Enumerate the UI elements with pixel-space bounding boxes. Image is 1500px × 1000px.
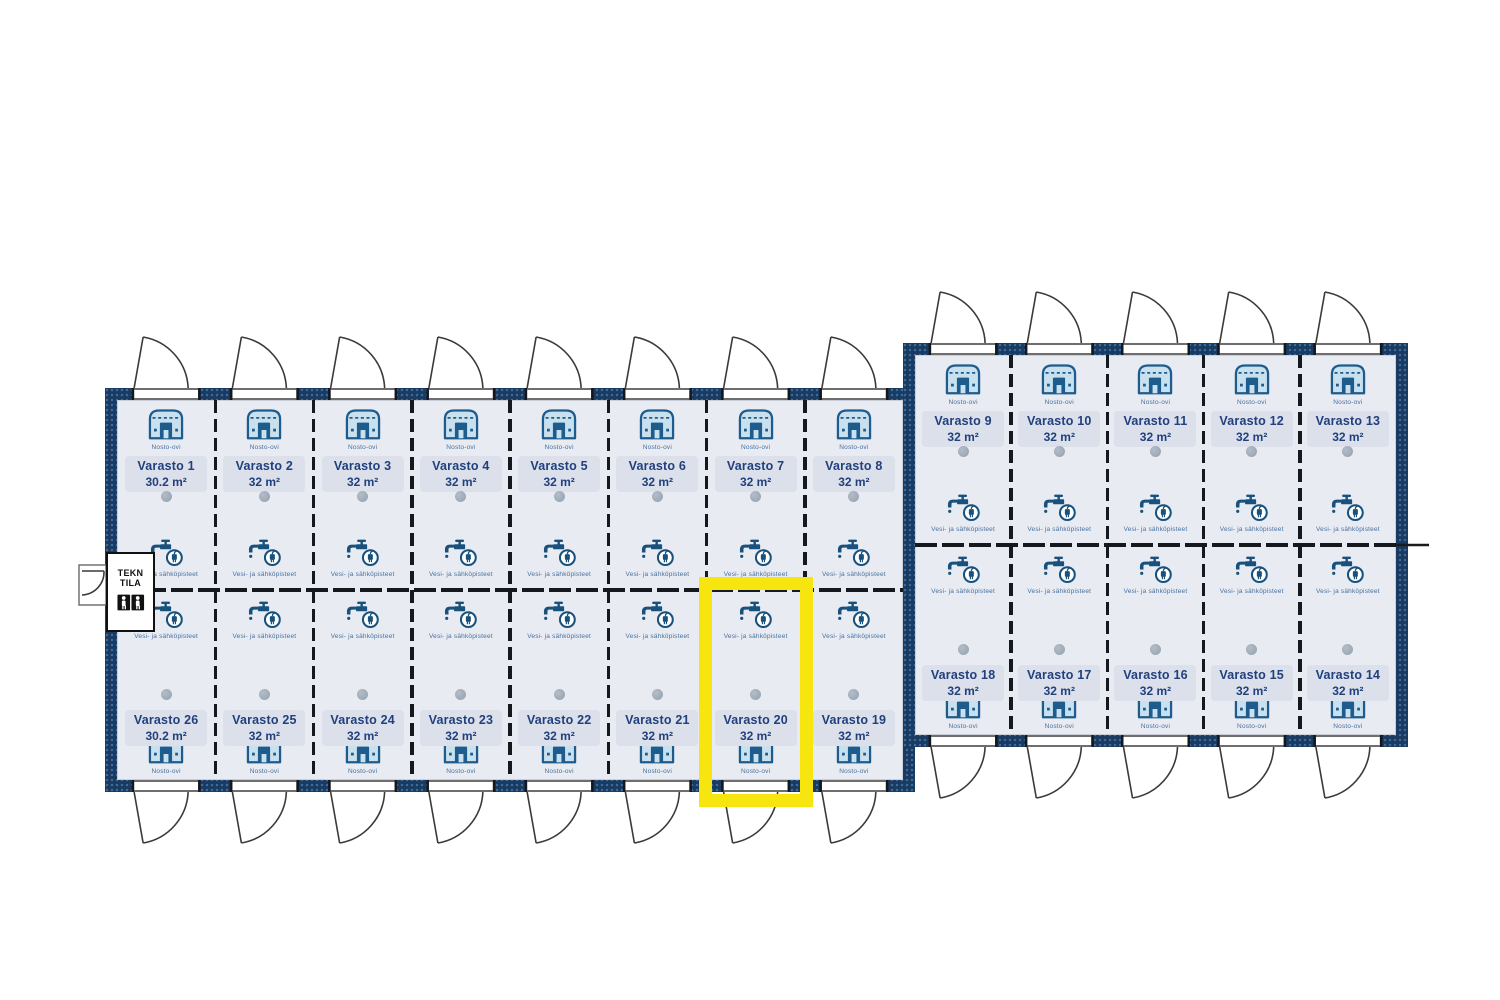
garage-door-icon xyxy=(1135,362,1175,399)
nosto-ovi-label: Nosto-ovi xyxy=(117,769,215,776)
unit-name-plate: Varasto 13 32 m² xyxy=(1307,411,1389,447)
unit-name: Varasto 5 xyxy=(525,460,593,473)
vent-block xyxy=(1011,445,1107,461)
unit-name: Varasto 7 xyxy=(722,460,790,473)
vent-block xyxy=(608,490,706,506)
garage-door-icon xyxy=(1232,362,1272,399)
unit-name-plate: Varasto 26 30.2 m² xyxy=(125,710,207,746)
utilities-block: Vesi- ja sähköpisteet xyxy=(1107,556,1203,596)
unit-name: Varasto 8 xyxy=(820,460,888,473)
water-electric-icon xyxy=(246,601,283,633)
vent-block xyxy=(1300,643,1396,659)
vent-icon xyxy=(455,689,466,700)
nosto-ovi-label: Nosto-ovi xyxy=(1300,724,1396,731)
utilities-label: Vesi- ja sähköpisteet xyxy=(510,634,608,641)
unit-plate-block: Varasto 10 32 m² xyxy=(1011,411,1107,447)
unit-name: Varasto 13 xyxy=(1314,415,1382,428)
garage-door-icon xyxy=(441,407,481,444)
vent-icon xyxy=(357,491,368,502)
unit-name: Varasto 25 xyxy=(230,714,298,727)
unit-area: 32 m² xyxy=(427,730,495,742)
unit-plate-block: Varasto 2 32 m² xyxy=(215,456,313,492)
utilities-label: Vesi- ja sähköpisteet xyxy=(1107,527,1203,534)
nosto-ovi-label: Nosto-ovi xyxy=(1107,724,1203,731)
unit-area: 32 m² xyxy=(1121,431,1189,443)
utilities-block: Vesi- ja sähköpisteet xyxy=(510,539,608,579)
vent-block xyxy=(215,490,313,506)
storage-unit[interactable]: Nosto-ovi Varasto 17 32 m² xyxy=(1011,547,1107,735)
unit-divider-wall xyxy=(410,400,414,780)
vent-block xyxy=(314,490,412,506)
unit-area: 32 m² xyxy=(1314,685,1382,697)
nosto-ovi-label: Nosto-ovi xyxy=(215,769,313,776)
unit-name-plate: Varasto 7 32 m² xyxy=(715,456,797,492)
unit-name-plate: Varasto 11 32 m² xyxy=(1114,411,1196,447)
unit-plate-block: Varasto 22 32 m² xyxy=(510,710,608,746)
unit-area: 32 m² xyxy=(1314,431,1382,443)
nosto-ovi-label: Nosto-ovi xyxy=(1204,724,1300,731)
unit-area: 30.2 m² xyxy=(132,730,200,742)
technical-room: TEKN TILA xyxy=(106,552,155,632)
unit-plate-block: Varasto 6 32 m² xyxy=(608,456,706,492)
nosto-ovi-label: Nosto-ovi xyxy=(1011,400,1107,407)
water-electric-icon xyxy=(737,539,774,571)
garage-door-block: Nosto-ovi xyxy=(915,362,1011,407)
nosto-ovi-label: Nosto-ovi xyxy=(608,445,706,452)
unit-name: Varasto 2 xyxy=(230,460,298,473)
technical-room-label-line2: TILA xyxy=(108,578,153,588)
garage-door-block: Nosto-ovi xyxy=(314,407,412,452)
garage-door-icon xyxy=(244,407,284,444)
nosto-ovi-label: Nosto-ovi xyxy=(1107,400,1203,407)
unit-name: Varasto 4 xyxy=(427,460,495,473)
vent-block xyxy=(805,490,903,506)
utilities-label: Vesi- ja sähköpisteet xyxy=(1204,527,1300,534)
unit-plate-block: Varasto 14 32 m² xyxy=(1300,665,1396,701)
water-electric-icon xyxy=(639,601,676,633)
utilities-block: Vesi- ja sähköpisteet xyxy=(1011,494,1107,534)
unit-name: Varasto 24 xyxy=(329,714,397,727)
vent-icon xyxy=(161,689,172,700)
unit-plate-block: Varasto 11 32 m² xyxy=(1107,411,1203,447)
utilities-label: Vesi- ja sähköpisteet xyxy=(314,634,412,641)
nosto-ovi-label: Nosto-ovi xyxy=(412,769,510,776)
highlight-box xyxy=(699,577,813,807)
storage-unit[interactable]: Nosto-ovi Varasto 14 32 m² xyxy=(1300,547,1396,735)
utilities-label: Vesi- ja sähköpisteet xyxy=(215,634,313,641)
technical-room-label: TEKN TILA xyxy=(108,568,153,589)
technical-room-label-line1: TEKN xyxy=(108,568,153,578)
garage-door-block: Nosto-ovi xyxy=(1300,362,1396,407)
utilities-block: Vesi- ja sähköpisteet xyxy=(805,539,903,579)
unit-area: 32 m² xyxy=(929,685,997,697)
utilities-block: Vesi- ja sähköpisteet xyxy=(915,556,1011,596)
utilities-block: Vesi- ja sähköpisteet xyxy=(412,539,510,579)
unit-name-plate: Varasto 21 32 m² xyxy=(616,710,698,746)
unit-divider-wall xyxy=(1106,355,1110,735)
utilities-block: Vesi- ja sähköpisteet xyxy=(1204,494,1300,534)
unit-name-plate: Varasto 12 32 m² xyxy=(1211,411,1293,447)
vent-icon xyxy=(259,689,270,700)
vent-block xyxy=(117,688,215,704)
water-electric-icon xyxy=(639,539,676,571)
unit-name: Varasto 10 xyxy=(1025,415,1093,428)
unit-name: Varasto 16 xyxy=(1121,669,1189,682)
unit-area: 32 m² xyxy=(329,730,397,742)
unit-plate-block: Varasto 21 32 m² xyxy=(608,710,706,746)
unit-name: Varasto 9 xyxy=(929,415,997,428)
garage-door-block: Nosto-ovi xyxy=(215,407,313,452)
nosto-ovi-label: Nosto-ovi xyxy=(915,724,1011,731)
storage-unit[interactable]: Nosto-ovi Varasto 9 32 m² xyxy=(915,355,1011,543)
unit-name: Varasto 17 xyxy=(1025,669,1093,682)
unit-plate-block: Varasto 19 32 m² xyxy=(805,710,903,746)
nosto-ovi-label: Nosto-ovi xyxy=(314,445,412,452)
utilities-label: Vesi- ja sähköpisteet xyxy=(412,634,510,641)
unit-area: 32 m² xyxy=(929,431,997,443)
garage-door-block: Nosto-ovi xyxy=(1107,362,1203,407)
storage-unit[interactable]: Nosto-ovi Varasto 10 32 m² xyxy=(1011,355,1107,543)
vent-block xyxy=(1107,643,1203,659)
unit-name-plate: Varasto 16 32 m² xyxy=(1114,665,1196,701)
vent-icon xyxy=(161,491,172,502)
garage-door-icon xyxy=(1328,362,1368,399)
unit-plate-block: Varasto 17 32 m² xyxy=(1011,665,1107,701)
garage-door-icon xyxy=(834,407,874,444)
unit-area: 32 m² xyxy=(1218,685,1286,697)
storage-unit[interactable]: Nosto-ovi Varasto 25 32 m² xyxy=(215,592,313,780)
unit-plate-block: Varasto 24 32 m² xyxy=(314,710,412,746)
utilities-block: Vesi- ja sähköpisteet xyxy=(1300,556,1396,596)
vent-block xyxy=(412,688,510,704)
unit-plate-block: Varasto 9 32 m² xyxy=(915,411,1011,447)
storage-unit[interactable]: Nosto-ovi Varasto 18 32 m² xyxy=(915,547,1011,735)
vent-block xyxy=(608,688,706,704)
unit-area: 32 m² xyxy=(1121,685,1189,697)
unit-plate-block: Varasto 23 32 m² xyxy=(412,710,510,746)
unit-name-plate: Varasto 2 32 m² xyxy=(223,456,305,492)
utilities-block: Vesi- ja sähköpisteet xyxy=(1107,494,1203,534)
unit-divider-wall xyxy=(312,400,316,780)
vent-block xyxy=(707,490,805,506)
nosto-ovi-label: Nosto-ovi xyxy=(1011,724,1107,731)
unit-divider-wall xyxy=(1202,355,1206,735)
water-electric-icon xyxy=(344,539,381,571)
unit-name-plate: Varasto 8 32 m² xyxy=(813,456,895,492)
utilities-label: Vesi- ja sähköpisteet xyxy=(608,572,706,579)
utilities-label: Vesi- ja sähköpisteet xyxy=(1300,589,1396,596)
floor-plan: TEKN TILA xyxy=(0,0,1500,1000)
unit-area: 32 m² xyxy=(525,476,593,488)
storage-unit[interactable]: Nosto-ovi Varasto 7 32 m² xyxy=(707,400,805,588)
vent-icon xyxy=(1150,644,1161,655)
unit-divider-wall xyxy=(214,400,218,780)
garage-door-block: Nosto-ovi xyxy=(707,407,805,452)
unit-plate-block: Varasto 4 32 m² xyxy=(412,456,510,492)
storage-unit[interactable]: Nosto-ovi Varasto 11 32 m² xyxy=(1107,355,1203,543)
unit-area: 32 m² xyxy=(1025,685,1093,697)
nosto-ovi-label: Nosto-ovi xyxy=(215,445,313,452)
unit-name: Varasto 18 xyxy=(929,669,997,682)
unit-plate-block: Varasto 8 32 m² xyxy=(805,456,903,492)
vent-block xyxy=(412,490,510,506)
nosto-ovi-label: Nosto-ovi xyxy=(314,769,412,776)
storage-unit[interactable]: Nosto-ovi Varasto 15 32 m² xyxy=(1204,547,1300,735)
garage-door-icon xyxy=(736,407,776,444)
utilities-label: Vesi- ja sähköpisteet xyxy=(805,634,903,641)
utilities-label: Vesi- ja sähköpisteet xyxy=(1011,527,1107,534)
vent-icon xyxy=(1150,446,1161,457)
utilities-label: Vesi- ja sähköpisteet xyxy=(1107,589,1203,596)
nosto-ovi-label: Nosto-ovi xyxy=(117,445,215,452)
unit-plate-block: Varasto 7 32 m² xyxy=(707,456,805,492)
unit-area: 30.2 m² xyxy=(132,476,200,488)
vent-icon xyxy=(848,689,859,700)
wc-icon xyxy=(117,594,145,611)
utilities-block: Vesi- ja sähköpisteet xyxy=(510,601,608,641)
water-electric-icon xyxy=(1137,556,1174,588)
storage-unit[interactable]: Nosto-ovi Varasto 16 32 m² xyxy=(1107,547,1203,735)
storage-unit[interactable]: Nosto-ovi Varasto 23 32 m² xyxy=(412,592,510,780)
unit-divider-wall xyxy=(1298,355,1302,735)
unit-name: Varasto 12 xyxy=(1218,415,1286,428)
unit-name-plate: Varasto 24 32 m² xyxy=(322,710,404,746)
utilities-block: Vesi- ja sähköpisteet xyxy=(1204,556,1300,596)
storage-unit[interactable]: Nosto-ovi Varasto 12 32 m² xyxy=(1204,355,1300,543)
unit-name: Varasto 22 xyxy=(525,714,593,727)
nosto-ovi-label: Nosto-ovi xyxy=(412,445,510,452)
garage-door-block: Nosto-ovi xyxy=(1011,362,1107,407)
unit-name-plate: Varasto 10 32 m² xyxy=(1018,411,1100,447)
unit-name: Varasto 14 xyxy=(1314,669,1382,682)
nosto-ovi-label: Nosto-ovi xyxy=(1204,400,1300,407)
storage-unit[interactable]: Nosto-ovi Varasto 6 32 m² xyxy=(608,400,706,588)
water-electric-icon xyxy=(1041,556,1078,588)
nosto-ovi-label: Nosto-ovi xyxy=(707,445,805,452)
unit-name: Varasto 6 xyxy=(623,460,691,473)
nosto-ovi-label: Nosto-ovi xyxy=(510,769,608,776)
vent-block xyxy=(1204,643,1300,659)
unit-divider-wall xyxy=(1009,355,1013,735)
vent-block xyxy=(117,490,215,506)
unit-plate-block: Varasto 25 32 m² xyxy=(215,710,313,746)
utilities-block: Vesi- ja sähköpisteet xyxy=(608,539,706,579)
unit-name-plate: Varasto 14 32 m² xyxy=(1307,665,1389,701)
nosto-ovi-label: Nosto-ovi xyxy=(805,445,903,452)
water-electric-icon xyxy=(1329,494,1366,526)
storage-unit[interactable]: Nosto-ovi Varasto 13 32 m² xyxy=(1300,355,1396,543)
unit-name-plate: Varasto 5 32 m² xyxy=(518,456,600,492)
water-electric-icon xyxy=(1137,494,1174,526)
storage-unit[interactable]: Nosto-ovi Varasto 19 32 m² xyxy=(805,592,903,780)
unit-plate-block: Varasto 15 32 m² xyxy=(1204,665,1300,701)
unit-divider-wall xyxy=(508,400,512,780)
vent-icon xyxy=(1342,446,1353,457)
unit-area: 32 m² xyxy=(820,476,888,488)
garage-door-block: Nosto-ovi xyxy=(117,407,215,452)
water-electric-icon xyxy=(246,539,283,571)
water-electric-icon xyxy=(1041,494,1078,526)
vent-icon xyxy=(958,644,969,655)
unit-name-plate: Varasto 3 32 m² xyxy=(322,456,404,492)
storage-unit[interactable]: Nosto-ovi Varasto 5 32 m² xyxy=(510,400,608,588)
water-electric-icon xyxy=(835,601,872,633)
vent-icon xyxy=(554,491,565,502)
water-electric-icon xyxy=(835,539,872,571)
water-electric-icon xyxy=(1233,494,1270,526)
utilities-block: Vesi- ja sähköpisteet xyxy=(707,539,805,579)
unit-name-plate: Varasto 9 32 m² xyxy=(922,411,1004,447)
garage-door-icon xyxy=(1039,362,1079,399)
water-electric-icon xyxy=(442,601,479,633)
utilities-block: Vesi- ja sähköpisteet xyxy=(805,601,903,641)
unit-plate-block: Varasto 12 32 m² xyxy=(1204,411,1300,447)
vent-block xyxy=(510,490,608,506)
vent-block xyxy=(510,688,608,704)
utilities-block: Vesi- ja sähköpisteet xyxy=(608,601,706,641)
vent-block xyxy=(805,688,903,704)
unit-name-plate: Varasto 15 32 m² xyxy=(1211,665,1293,701)
unit-name-plate: Varasto 19 32 m² xyxy=(813,710,895,746)
utilities-label: Vesi- ja sähköpisteet xyxy=(915,589,1011,596)
unit-name: Varasto 26 xyxy=(132,714,200,727)
unit-name-plate: Varasto 25 32 m² xyxy=(223,710,305,746)
unit-name: Varasto 19 xyxy=(820,714,888,727)
garage-door-icon xyxy=(539,407,579,444)
unit-plate-block: Varasto 16 32 m² xyxy=(1107,665,1203,701)
storage-unit[interactable]: Nosto-ovi Varasto 8 32 m² xyxy=(805,400,903,588)
unit-area: 32 m² xyxy=(820,730,888,742)
utilities-label: Vesi- ja sähköpisteet xyxy=(215,572,313,579)
vent-icon xyxy=(1054,446,1065,457)
utilities-label: Vesi- ja sähköpisteet xyxy=(805,572,903,579)
water-electric-icon xyxy=(442,539,479,571)
vent-icon xyxy=(1342,644,1353,655)
vent-icon xyxy=(1054,644,1065,655)
utilities-block: Vesi- ja sähköpisteet xyxy=(1300,494,1396,534)
unit-name: Varasto 3 xyxy=(329,460,397,473)
garage-door-block: Nosto-ovi xyxy=(412,407,510,452)
utilities-label: Vesi- ja sähköpisteet xyxy=(915,527,1011,534)
unit-name: Varasto 21 xyxy=(623,714,691,727)
vent-block xyxy=(314,688,412,704)
nosto-ovi-label: Nosto-ovi xyxy=(510,445,608,452)
unit-name-plate: Varasto 22 32 m² xyxy=(518,710,600,746)
nosto-ovi-label: Nosto-ovi xyxy=(805,769,903,776)
unit-name: Varasto 23 xyxy=(427,714,495,727)
vent-icon xyxy=(652,689,663,700)
utilities-block: Vesi- ja sähköpisteet xyxy=(412,601,510,641)
utilities-label: Vesi- ja sähköpisteet xyxy=(1204,589,1300,596)
utilities-label: Vesi- ja sähköpisteet xyxy=(412,572,510,579)
nosto-ovi-label: Nosto-ovi xyxy=(915,400,1011,407)
vent-icon xyxy=(1246,644,1257,655)
vent-icon xyxy=(554,689,565,700)
utilities-block: Vesi- ja sähköpisteet xyxy=(915,494,1011,534)
storage-unit[interactable]: Nosto-ovi Varasto 2 32 m² xyxy=(215,400,313,588)
vent-icon xyxy=(958,446,969,457)
unit-plate-block: Varasto 3 32 m² xyxy=(314,456,412,492)
unit-name-plate: Varasto 17 32 m² xyxy=(1018,665,1100,701)
water-electric-icon xyxy=(541,601,578,633)
unit-area: 32 m² xyxy=(230,476,298,488)
unit-name-plate: Varasto 4 32 m² xyxy=(420,456,502,492)
storage-unit[interactable]: Nosto-ovi Varasto 24 32 m² xyxy=(314,592,412,780)
unit-area: 32 m² xyxy=(623,476,691,488)
water-electric-icon xyxy=(1329,556,1366,588)
unit-area: 32 m² xyxy=(1218,431,1286,443)
unit-name-plate: Varasto 1 30.2 m² xyxy=(125,456,207,492)
water-electric-icon xyxy=(1233,556,1270,588)
unit-plate-block: Varasto 5 32 m² xyxy=(510,456,608,492)
vent-block xyxy=(915,445,1011,461)
garage-door-block: Nosto-ovi xyxy=(608,407,706,452)
garage-door-icon xyxy=(146,407,186,444)
vent-block xyxy=(1107,445,1203,461)
vent-block xyxy=(215,688,313,704)
utilities-block: Vesi- ja sähköpisteet xyxy=(215,539,313,579)
garage-door-block: Nosto-ovi xyxy=(1204,362,1300,407)
utilities-block: Vesi- ja sähköpisteet xyxy=(1011,556,1107,596)
vent-icon xyxy=(750,491,761,502)
unit-plate-block: Varasto 13 32 m² xyxy=(1300,411,1396,447)
garage-door-icon xyxy=(343,407,383,444)
unit-plate-block: Varasto 26 30.2 m² xyxy=(117,710,215,746)
water-electric-icon xyxy=(945,494,982,526)
garage-door-block: Nosto-ovi xyxy=(510,407,608,452)
unit-area: 32 m² xyxy=(329,476,397,488)
utilities-label: Vesi- ja sähköpisteet xyxy=(608,634,706,641)
utilities-label: Vesi- ja sähköpisteet xyxy=(314,572,412,579)
unit-name: Varasto 15 xyxy=(1218,669,1286,682)
nosto-ovi-label: Nosto-ovi xyxy=(1300,400,1396,407)
vent-icon xyxy=(455,491,466,502)
water-electric-icon xyxy=(344,601,381,633)
unit-name-plate: Varasto 23 32 m² xyxy=(420,710,502,746)
water-electric-icon xyxy=(945,556,982,588)
garage-door-block: Nosto-ovi xyxy=(805,407,903,452)
unit-divider-wall xyxy=(607,400,611,780)
storage-unit[interactable]: Nosto-ovi Varasto 22 32 m² xyxy=(510,592,608,780)
vent-icon xyxy=(848,491,859,502)
vent-icon xyxy=(1246,446,1257,457)
unit-plate-block: Varasto 18 32 m² xyxy=(915,665,1011,701)
utilities-label: Vesi- ja sähköpisteet xyxy=(1011,589,1107,596)
unit-name: Varasto 1 xyxy=(132,460,200,473)
unit-name-plate: Varasto 18 32 m² xyxy=(922,665,1004,701)
water-electric-icon xyxy=(541,539,578,571)
storage-unit[interactable]: Nosto-ovi Varasto 21 32 m² xyxy=(608,592,706,780)
vent-icon xyxy=(259,491,270,502)
unit-area: 32 m² xyxy=(1025,431,1093,443)
unit-name-plate: Varasto 6 32 m² xyxy=(616,456,698,492)
utilities-label: Vesi- ja sähköpisteet xyxy=(1300,527,1396,534)
unit-area: 32 m² xyxy=(623,730,691,742)
unit-area: 32 m² xyxy=(722,476,790,488)
unit-area: 32 m² xyxy=(427,476,495,488)
unit-name: Varasto 11 xyxy=(1121,415,1189,428)
utilities-label: Vesi- ja sähköpisteet xyxy=(510,572,608,579)
storage-unit[interactable]: Nosto-ovi Varasto 3 32 m² xyxy=(314,400,412,588)
utilities-block: Vesi- ja sähköpisteet xyxy=(314,539,412,579)
unit-area: 32 m² xyxy=(525,730,593,742)
storage-unit[interactable]: Nosto-ovi Varasto 4 32 m² xyxy=(412,400,510,588)
vent-block xyxy=(1300,445,1396,461)
vent-block xyxy=(1204,445,1300,461)
vent-block xyxy=(915,643,1011,659)
utilities-block: Vesi- ja sähköpisteet xyxy=(215,601,313,641)
vent-block xyxy=(1011,643,1107,659)
